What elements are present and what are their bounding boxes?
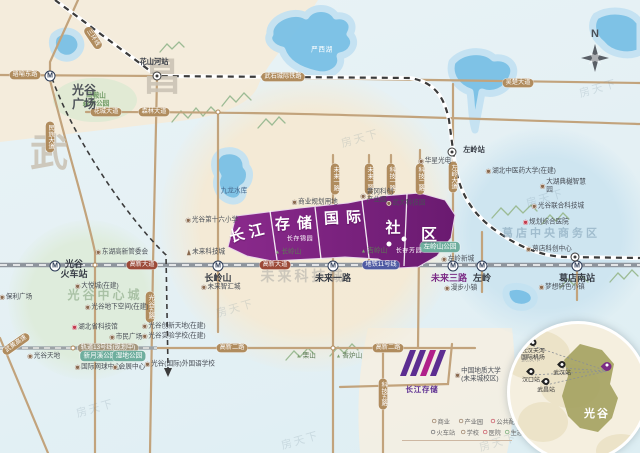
poi-label: 商业规划用地 bbox=[292, 198, 338, 206]
poi-label: 葛店科创中心 bbox=[526, 245, 572, 253]
rail-station-label: 花山河站 bbox=[140, 58, 169, 66]
poi-label: 九龙水库 bbox=[221, 187, 247, 195]
banner-segment-label: 区 bbox=[421, 221, 437, 245]
metro-station-label: 左岭 bbox=[473, 274, 491, 284]
poi-label: 湖北中医药大学(在建) bbox=[486, 167, 556, 175]
poi-pin-icon bbox=[442, 257, 447, 262]
legend-icon bbox=[432, 419, 436, 423]
poi-pin-icon bbox=[387, 201, 392, 206]
poi-text: 规划综合医院 bbox=[529, 218, 569, 226]
poi-pin-icon bbox=[110, 335, 115, 340]
poi-pin-icon bbox=[539, 285, 544, 290]
poi-label: 光谷(国际)外国语学校 bbox=[145, 360, 215, 368]
poi-text: 光谷(国际)外国语学校 bbox=[151, 360, 215, 368]
road-pill: 吴楚大道 bbox=[503, 79, 534, 88]
poi-text: 葛店科创中心 bbox=[532, 245, 572, 253]
ymtc-logo-icon bbox=[398, 350, 446, 376]
poi-pin-icon bbox=[96, 250, 101, 255]
poi-label: 保利广场 bbox=[0, 293, 32, 301]
legend-icon bbox=[459, 419, 463, 423]
poi-label: ▲吉岭山 bbox=[361, 247, 387, 255]
poi-label: 光谷天地 bbox=[28, 352, 60, 360]
banner-sub-label: 长存锦园 bbox=[287, 234, 313, 243]
poi-text: 华星光电 bbox=[425, 157, 451, 165]
mountain-icon: ▲ bbox=[275, 249, 280, 254]
poi-label: 漫步小镇 bbox=[445, 284, 477, 292]
poi-pin-icon bbox=[72, 325, 77, 330]
poi-label: 湿地公园 bbox=[113, 351, 146, 362]
banner-segment-label: 社 bbox=[385, 217, 400, 238]
poi-pin-icon bbox=[526, 247, 531, 252]
poi-label: 武大科技园 bbox=[387, 199, 426, 207]
poi-pin-icon bbox=[85, 305, 90, 310]
legend-label: 学校 bbox=[467, 427, 479, 436]
banner-sub-label: 长存芳园 bbox=[396, 246, 422, 255]
road-pill: 珞喻东路 bbox=[10, 71, 41, 80]
poi-label: 东湖高新管委会 bbox=[96, 248, 148, 256]
legend-item: 商业 bbox=[432, 416, 450, 425]
poi-pin-icon bbox=[445, 286, 450, 291]
rail-station-icon bbox=[448, 148, 457, 157]
poi-text: 左岭新城 bbox=[448, 255, 474, 263]
poi-text: 市民广场 bbox=[116, 333, 142, 341]
mountain-icon: ▲ bbox=[336, 353, 341, 358]
poi-text: 湿地公园 bbox=[116, 352, 142, 360]
legend-label: 火车站 bbox=[436, 427, 455, 436]
inset-region-label: 光谷 bbox=[584, 408, 610, 421]
area-name-label: 光谷中心城 bbox=[67, 289, 142, 303]
poi-text: 会展中心 bbox=[119, 363, 145, 371]
metro-station-icon: M bbox=[572, 261, 583, 272]
poi-label: 中国地质大学 (未来城校区) bbox=[455, 367, 501, 383]
poi-text: 光谷地下空间(在建) bbox=[91, 303, 148, 311]
poi-pin-icon bbox=[523, 220, 528, 225]
road-pill: 武石城际铁路 bbox=[261, 73, 304, 82]
rail-station-icon bbox=[571, 253, 580, 262]
legend-icon bbox=[491, 419, 495, 423]
poi-text: 栗山 bbox=[303, 352, 316, 360]
poi-pin-icon bbox=[75, 284, 80, 289]
metro-station-icon: M bbox=[213, 261, 224, 272]
metro-station-icon: M bbox=[477, 261, 488, 272]
poi-label: 光谷实验学校(在建) bbox=[142, 332, 205, 340]
poi-pin-icon bbox=[142, 324, 147, 329]
banner-dot-icon bbox=[387, 242, 392, 247]
poi-text: 东湖高新管委会 bbox=[102, 248, 148, 256]
poi-text: 漫步小镇 bbox=[451, 284, 477, 292]
road-pill: 森林大道 bbox=[139, 108, 170, 117]
poi-text: 大悦城(在建) bbox=[81, 282, 118, 290]
map-pin-label: 武汉站 bbox=[553, 369, 571, 376]
map-pin-label: 武昌站 bbox=[537, 386, 555, 393]
poi-text: 光谷创新天地(在建) bbox=[148, 322, 205, 330]
location-map: 昌武光谷中心城未来科技城葛店中央商务区珞喻东路三环线花城大道森林大道武石城际铁路… bbox=[0, 0, 640, 453]
poi-pin-icon bbox=[486, 169, 491, 174]
poi-text: 长岭山 bbox=[281, 248, 301, 256]
legend-item: 学校 bbox=[461, 427, 479, 436]
poi-pin-icon bbox=[186, 218, 191, 223]
banner-segment-label: 存储 bbox=[274, 211, 319, 234]
poi-label: 华星光电 bbox=[419, 157, 451, 165]
guanggu-square-label: 光谷 广场 bbox=[72, 84, 96, 112]
road-pill: 高新二路 bbox=[217, 344, 248, 353]
poi-text: 保利广场 bbox=[6, 293, 32, 301]
poi-pin-icon bbox=[361, 194, 366, 199]
legend-label: 商业 bbox=[438, 416, 450, 425]
road-junction bbox=[331, 346, 336, 351]
compass-icon: N bbox=[577, 28, 613, 80]
poi-label: 市民广场 bbox=[110, 333, 142, 341]
poi-label: 未来科技城 bbox=[187, 248, 225, 256]
road-pill: 高新大道 bbox=[260, 261, 291, 270]
road-pill: 科技二路 bbox=[416, 164, 425, 195]
road-pill: 民族大道 bbox=[46, 122, 55, 153]
mountain-icon: ▲ bbox=[361, 248, 366, 253]
road-junction bbox=[71, 346, 76, 351]
poi-pin-icon bbox=[0, 295, 4, 300]
rail-station-label: 左岭站 bbox=[463, 146, 485, 154]
poi-text: 梦想特色小镇 bbox=[545, 283, 585, 291]
poi-text: 光谷第十六小学 bbox=[192, 216, 238, 224]
poi-label: 严西湖 bbox=[311, 46, 333, 54]
legend-item: 火车站 bbox=[431, 427, 455, 436]
map-pin-label: 武汉天河 国际机场 bbox=[521, 347, 545, 361]
poi-label: ▲栗山 bbox=[296, 352, 316, 360]
poi-text: 湖北中医药大学(在建) bbox=[492, 167, 556, 175]
legend-label: 产业园 bbox=[464, 416, 483, 425]
road-pill: 科技五路 bbox=[379, 379, 388, 410]
banner-dot-icon bbox=[402, 237, 407, 242]
poi-label: ▲香炉山 bbox=[336, 352, 362, 360]
poi-pin-icon bbox=[28, 354, 33, 359]
poi-label: ▲长岭山 bbox=[275, 248, 301, 256]
poi-pin-icon bbox=[145, 362, 150, 367]
road-pill: 左岭大道 bbox=[449, 162, 458, 193]
poi-pin-icon bbox=[142, 334, 147, 339]
road-junction bbox=[216, 110, 221, 115]
poi-label: 光谷第十六小学 bbox=[186, 216, 238, 224]
road-pill: 地铁11号线 bbox=[362, 261, 399, 270]
map-pin-label: 汉口站 bbox=[522, 376, 540, 383]
poi-label: 左岭新城 bbox=[442, 255, 474, 263]
road-pill: 高新大道 bbox=[127, 261, 158, 270]
poi-pin-icon bbox=[292, 200, 297, 205]
poi-text: 湖北省科技馆 bbox=[78, 323, 118, 331]
poi-label: 未来智汇城 bbox=[202, 283, 241, 291]
brand-logo: 长江存储 bbox=[394, 350, 450, 396]
metro-station-icon: M bbox=[45, 71, 56, 82]
legend-icon bbox=[431, 430, 435, 434]
legend-icon bbox=[483, 430, 487, 434]
poi-text: 光谷实验学校(在建) bbox=[148, 332, 205, 340]
poi-pin-icon bbox=[202, 285, 207, 290]
poi-text: 未来科技城 bbox=[192, 248, 225, 256]
compass-label: N bbox=[577, 28, 613, 40]
area-name-label: 葛店中央商务区 bbox=[502, 228, 600, 241]
legend-icon bbox=[461, 430, 465, 434]
poi-pin-icon bbox=[540, 184, 545, 189]
legend-divider bbox=[402, 440, 512, 441]
legend-item: 产业园 bbox=[459, 416, 483, 425]
metro-station-label: 光谷 火车站 bbox=[61, 260, 88, 280]
poi-text: 商业规划用地 bbox=[298, 198, 338, 206]
poi-pin-icon bbox=[75, 365, 80, 370]
poi-label: 会展中心 bbox=[113, 363, 145, 371]
metro-station-icon: M bbox=[328, 261, 339, 272]
poi-label: 大悦城(在建) bbox=[75, 282, 118, 290]
poi-text: 吉岭山 bbox=[367, 247, 387, 255]
poi-label: 光谷创新天地(在建) bbox=[142, 322, 205, 330]
rail-station-icon bbox=[153, 72, 162, 81]
inset-map: 武汉市 光谷 武汉天河 国际机场武汉站汉口站武昌站 bbox=[507, 321, 640, 453]
metro-station-label: 未来三路 bbox=[431, 274, 467, 284]
poi-text: 光谷天地 bbox=[34, 352, 60, 360]
poi-label: 规划综合医院 bbox=[523, 218, 569, 226]
poi-label: 湖北省科技馆 bbox=[72, 323, 118, 331]
tower-icon bbox=[187, 249, 191, 255]
road-junction bbox=[93, 263, 98, 268]
metro-station-icon: M bbox=[50, 261, 61, 272]
road-pill: 未来一路 bbox=[331, 164, 340, 195]
mountain-icon: ▲ bbox=[296, 353, 301, 358]
poi-pin-icon bbox=[455, 373, 460, 378]
poi-label: 光谷地下空间(在建) bbox=[85, 303, 148, 311]
banner-segment-label: 国际 bbox=[323, 205, 368, 228]
brand-name: 长江存储 bbox=[401, 383, 443, 394]
poi-text: 九龙水库 bbox=[221, 187, 247, 195]
poi-text: 武大科技园 bbox=[392, 199, 425, 207]
poi-pin-icon bbox=[113, 365, 118, 370]
poi-text: 香炉山 bbox=[342, 352, 362, 360]
poi-label: 梦想特色小镇 bbox=[539, 283, 585, 291]
poi-text: 未来智汇城 bbox=[207, 283, 240, 291]
metro-station-label: 未来一路 bbox=[315, 274, 351, 284]
poi-text: 中国地质大学 (未来城校区) bbox=[461, 367, 501, 383]
poi-pin-icon bbox=[419, 159, 424, 164]
poi-text: 严西湖 bbox=[311, 46, 333, 54]
